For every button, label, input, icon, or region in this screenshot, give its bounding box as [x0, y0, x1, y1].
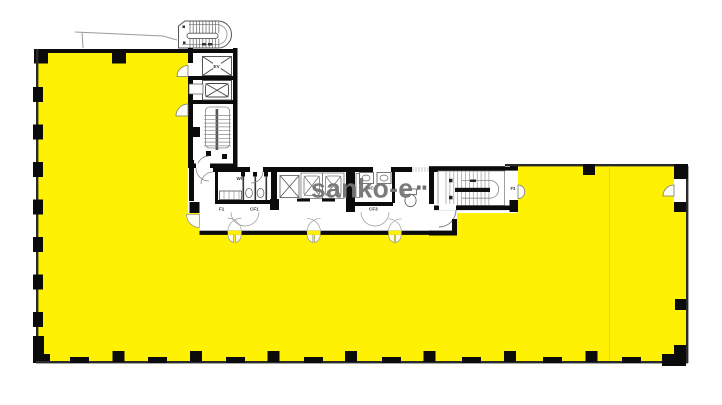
svg-text:WC: WC	[237, 176, 245, 181]
svg-text:F1: F1	[219, 207, 225, 212]
svg-text:CF3: CF3	[369, 207, 378, 212]
svg-text:CF1: CF1	[250, 207, 259, 212]
svg-text:EV: EV	[214, 64, 221, 69]
svg-text:F3: F3	[511, 186, 517, 191]
svg-text:sanko-e: sanko-e	[311, 174, 413, 204]
